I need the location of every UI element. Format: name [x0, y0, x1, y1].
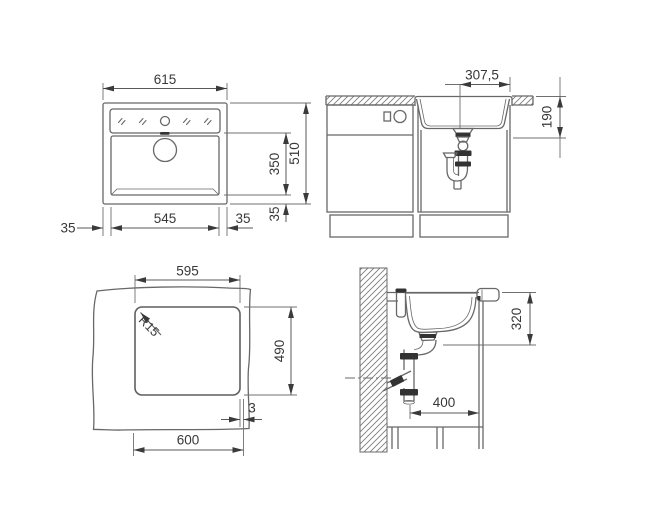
front-section-view: 307,5 190: [326, 68, 566, 238]
wall-hatch: [360, 268, 387, 452]
dim-bowl-depth: 190: [540, 106, 555, 129]
sink-cabinet: [418, 105, 510, 212]
drawing-svg: 615 510 350 35 35 545 35: [0, 0, 648, 530]
bowl-outline: [111, 136, 219, 195]
side-siphon-trap: [383, 332, 437, 404]
dim-edge-gap: 3: [248, 401, 256, 416]
cutout-view: R15 595 490 3 600: [92, 264, 297, 457]
tap-knockout-icon: [119, 119, 126, 125]
dim-plan-width: 615: [154, 72, 177, 87]
tap-knockout-icon: [140, 119, 147, 125]
dim-drain-offset: 307,5: [465, 68, 499, 83]
sink-rim-section: [415, 97, 512, 107]
plan-view: 615 510 350 35 35 545 35: [60, 72, 311, 236]
tap-knockout-icon: [205, 119, 212, 125]
dim-install-depth: 320: [509, 308, 524, 331]
left-plinth: [330, 215, 413, 237]
bowl-profile-inner: [410, 296, 473, 329]
counter-section: [387, 293, 479, 302]
dim-plan-margin-left: 35: [60, 221, 75, 236]
dim-base-width: 600: [177, 433, 200, 448]
right-plinth: [420, 215, 508, 237]
overflow-slot: [160, 132, 170, 135]
faucet-ledge: [110, 109, 220, 133]
dim-wall-clearance: 400: [433, 395, 456, 410]
bowl-section-inner: [420, 99, 506, 126]
sink-apron: [397, 290, 406, 317]
countertop-hatch: [512, 96, 533, 105]
tap-hole-icon: [161, 117, 170, 126]
socket-rect-icon: [384, 112, 391, 121]
dim-plan-inner-width: 545: [154, 211, 177, 226]
cabinet-side: [387, 301, 483, 449]
countertop-slab: [92, 287, 250, 430]
socket-circle-icon: [394, 111, 406, 123]
siphon-trap: [444, 129, 474, 190]
bowl-section-outer: [417, 99, 510, 129]
dim-cutout-depth: 490: [272, 340, 287, 363]
drain-hole-icon: [154, 139, 177, 162]
dim-cutout-width: 595: [176, 264, 199, 279]
dim-plan-inner-depth: 350: [267, 153, 282, 176]
countertop-hatch: [326, 96, 415, 105]
bowl-bottom-edge: [111, 189, 219, 195]
sink-technical-drawing: 615 510 350 35 35 545 35: [0, 0, 648, 530]
dim-plan-margin-right: 35: [235, 211, 250, 226]
dim-plan-height: 510: [287, 142, 302, 165]
tap-knockout-icon: [184, 119, 191, 125]
dim-plan-margin-v: 35: [267, 206, 282, 221]
dim-corner-radius: R15: [136, 313, 162, 339]
left-cabinet: [327, 105, 413, 212]
side-section-view: 320 400: [345, 268, 536, 452]
